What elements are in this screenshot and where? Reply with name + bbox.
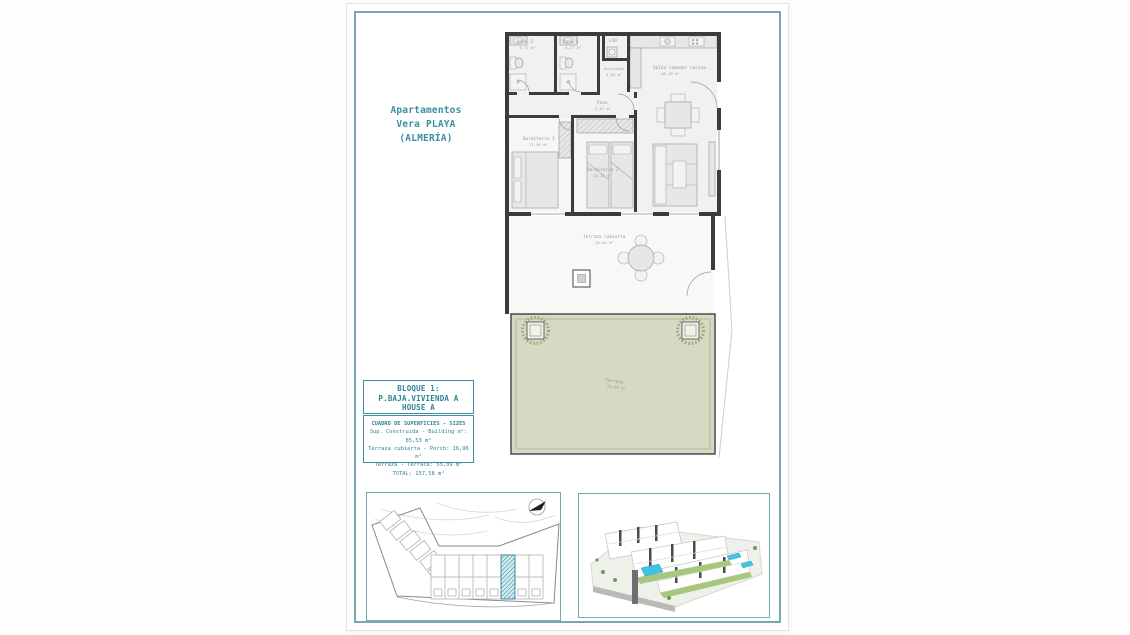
surface-table: CUADRO DE SUPERFICIES - SIZES Sup. Const…: [363, 415, 474, 463]
label-dormitorio1-area: 11,96 m²: [529, 142, 548, 147]
label-recibidor-area: 3,94 m²: [606, 72, 622, 77]
wardrobe-bedroom1: [559, 122, 571, 158]
label-terraza-cubierta-area: 16,96 m²: [595, 240, 614, 245]
project-title-line2: Vera PLAYA: [365, 118, 487, 132]
floor-plan: Baño 2 3,71 m² Baño 1 4,17 m² LVD Recibi…: [503, 30, 736, 466]
title-block: BLOQUE 1: P.BAJA.VIVIENDA A HOUSE A: [363, 380, 474, 414]
wardrobe-bedroom2: [577, 119, 633, 133]
title-block-line2: P.BAJA.VIVIENDA A: [364, 394, 473, 404]
project-title-line1: Apartamentos: [365, 104, 487, 118]
north-arrow-icon: [529, 499, 546, 515]
washer: [607, 47, 617, 57]
plot-boundary-line: [719, 216, 732, 458]
unit-row: [431, 555, 543, 599]
label-salon: Salón comedor cocina: [653, 64, 706, 71]
site-plan-box: [366, 492, 561, 621]
bed-double: [512, 152, 558, 208]
label-bano2-area: 3,71 m²: [519, 45, 535, 50]
surface-row-built: Sup. Construida - Building m²: 85,53 m²: [364, 428, 473, 445]
screenshot-canvas: Apartamentos Vera PLAYA (ALMERÍA): [0, 0, 1130, 635]
label-recibidor: Recibidor: [604, 66, 626, 71]
surface-table-header: CUADRO DE SUPERFICIES - SIZES: [364, 420, 473, 428]
label-paso-area: 2,01 m²: [595, 106, 611, 111]
title-block-line3: HOUSE A: [364, 403, 473, 413]
aerial-render-box: [578, 493, 770, 618]
label-salon-area: 26,10 m²: [661, 71, 680, 76]
site-plan: [367, 493, 560, 620]
surface-row-terrace: Terraza - Terrace: 55,09 m²: [364, 461, 473, 469]
aerial-render-image: [579, 494, 769, 617]
document-sheet: Apartamentos Vera PLAYA (ALMERÍA): [347, 4, 788, 630]
coffee-table: [673, 161, 686, 188]
barbecue: [573, 270, 590, 287]
surface-row-total: TOTAL: 157,58 m²: [364, 470, 473, 478]
highlighted-unit: [501, 555, 515, 599]
label-dormitorio2-area: 10,24 m²: [593, 173, 612, 178]
label-lvd: LVD: [609, 38, 617, 44]
project-title: Apartamentos Vera PLAYA (ALMERÍA): [365, 104, 487, 146]
title-block-line1: BLOQUE 1:: [364, 384, 473, 394]
project-title-line3: (ALMERÍA): [365, 132, 487, 146]
surface-row-porch: Terraza cubierta - Porch: 16,96 m²: [364, 445, 473, 462]
tv-unit: [709, 142, 715, 196]
label-bano1-area: 4,17 m²: [565, 45, 581, 50]
